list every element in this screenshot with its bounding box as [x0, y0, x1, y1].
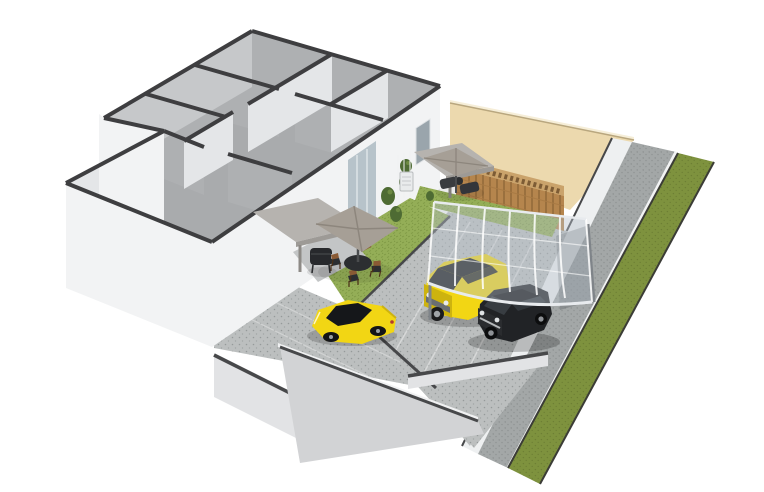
headlight [480, 311, 485, 316]
wall-ac-unit[interactable] [400, 172, 413, 191]
render-viewport [0, 0, 764, 492]
headlight [495, 318, 500, 323]
scene-canvas[interactable] [0, 0, 764, 492]
headlight [444, 301, 449, 306]
tail-light [390, 320, 394, 324]
